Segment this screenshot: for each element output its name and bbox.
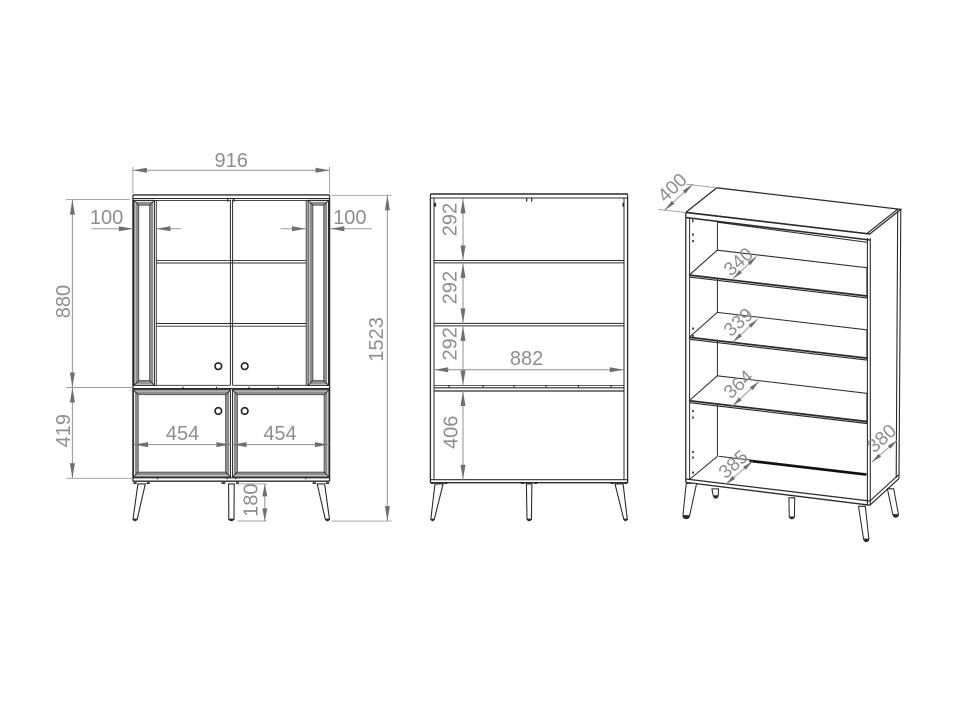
svg-text:882: 882 [510,348,543,370]
svg-text:380: 380 [863,421,901,458]
svg-text:916: 916 [215,150,248,172]
svg-text:292: 292 [440,203,462,236]
svg-text:880: 880 [53,285,75,318]
svg-text:100: 100 [90,207,123,229]
svg-text:406: 406 [440,416,462,449]
svg-text:180: 180 [240,484,262,517]
svg-text:454: 454 [263,423,296,445]
svg-text:100: 100 [333,207,366,229]
svg-text:385: 385 [715,447,753,484]
svg-text:292: 292 [440,327,462,360]
svg-text:292: 292 [440,271,462,304]
svg-text:1523: 1523 [366,317,388,362]
svg-text:454: 454 [166,423,199,445]
svg-text:400: 400 [654,170,691,207]
svg-text:419: 419 [53,414,75,447]
